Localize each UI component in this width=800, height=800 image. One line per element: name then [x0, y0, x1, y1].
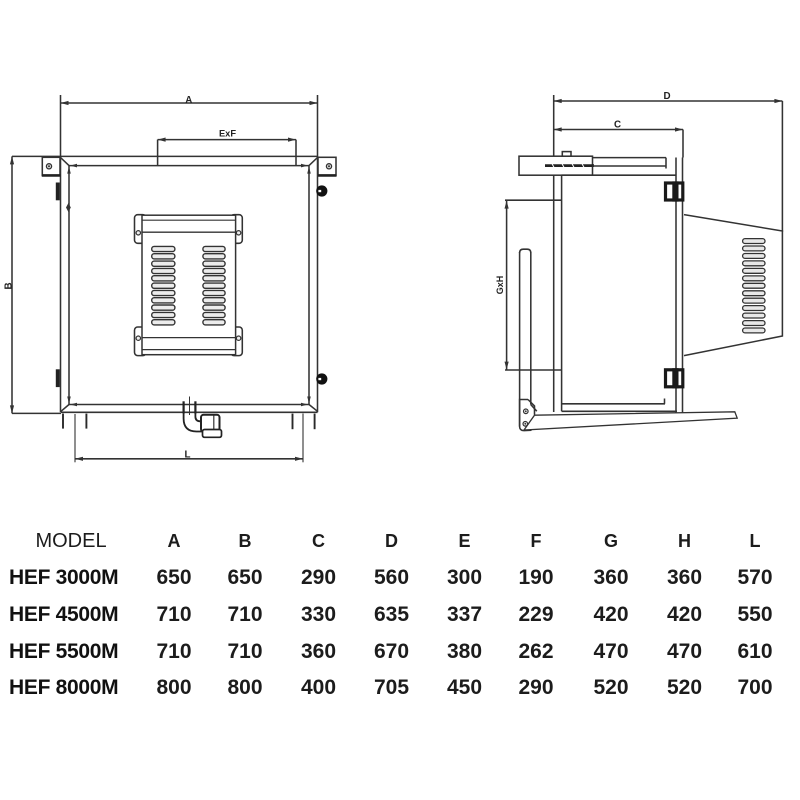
svg-text:L: L — [185, 450, 191, 461]
svg-text:C: C — [614, 119, 621, 130]
svg-text:B: B — [3, 282, 14, 289]
svg-text:GxH: GxH — [495, 276, 505, 295]
svg-text:A: A — [185, 95, 192, 106]
svg-text:D: D — [663, 91, 670, 102]
svg-text:ExF: ExF — [219, 129, 236, 139]
